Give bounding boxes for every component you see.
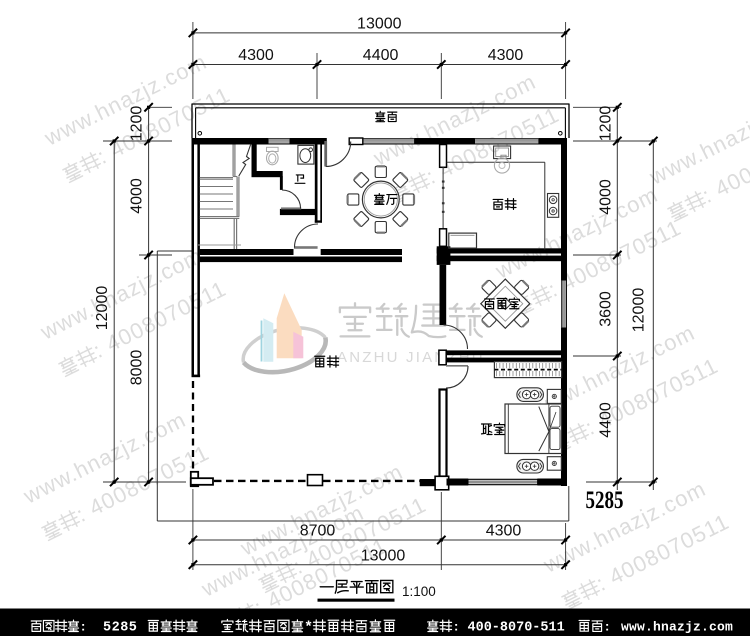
svg-text::: : — [81, 618, 85, 633]
svg-text::: : — [605, 618, 609, 633]
svg-text:1200: 1200 — [129, 106, 146, 142]
svg-text:4000: 4000 — [129, 178, 146, 214]
svg-text::: : — [454, 618, 458, 633]
svg-text:4300: 4300 — [486, 523, 522, 540]
svg-text:4300: 4300 — [238, 47, 274, 64]
svg-text:12000: 12000 — [631, 288, 648, 333]
svg-text:4000: 4000 — [598, 179, 615, 215]
svg-text:1200: 1200 — [598, 106, 615, 142]
svg-text:4300: 4300 — [488, 47, 524, 64]
svg-text:8000: 8000 — [129, 350, 146, 386]
svg-text:5285: 5285 — [103, 621, 137, 636]
svg-text:3600: 3600 — [598, 291, 615, 327]
svg-text:13000: 13000 — [361, 548, 406, 565]
svg-text:www.hnazjz.com: www.hnazjz.com — [621, 620, 733, 635]
svg-text:1:100: 1:100 — [402, 584, 436, 599]
svg-text:400-8070-511: 400-8070-511 — [468, 621, 565, 636]
svg-text:4400: 4400 — [363, 47, 399, 64]
svg-text:*: * — [306, 618, 312, 635]
svg-text:4400: 4400 — [598, 402, 615, 438]
svg-text:5285: 5285 — [586, 487, 624, 514]
svg-text:12000: 12000 — [94, 286, 111, 331]
svg-text:13000: 13000 — [357, 15, 402, 32]
svg-text:8700: 8700 — [300, 523, 336, 540]
